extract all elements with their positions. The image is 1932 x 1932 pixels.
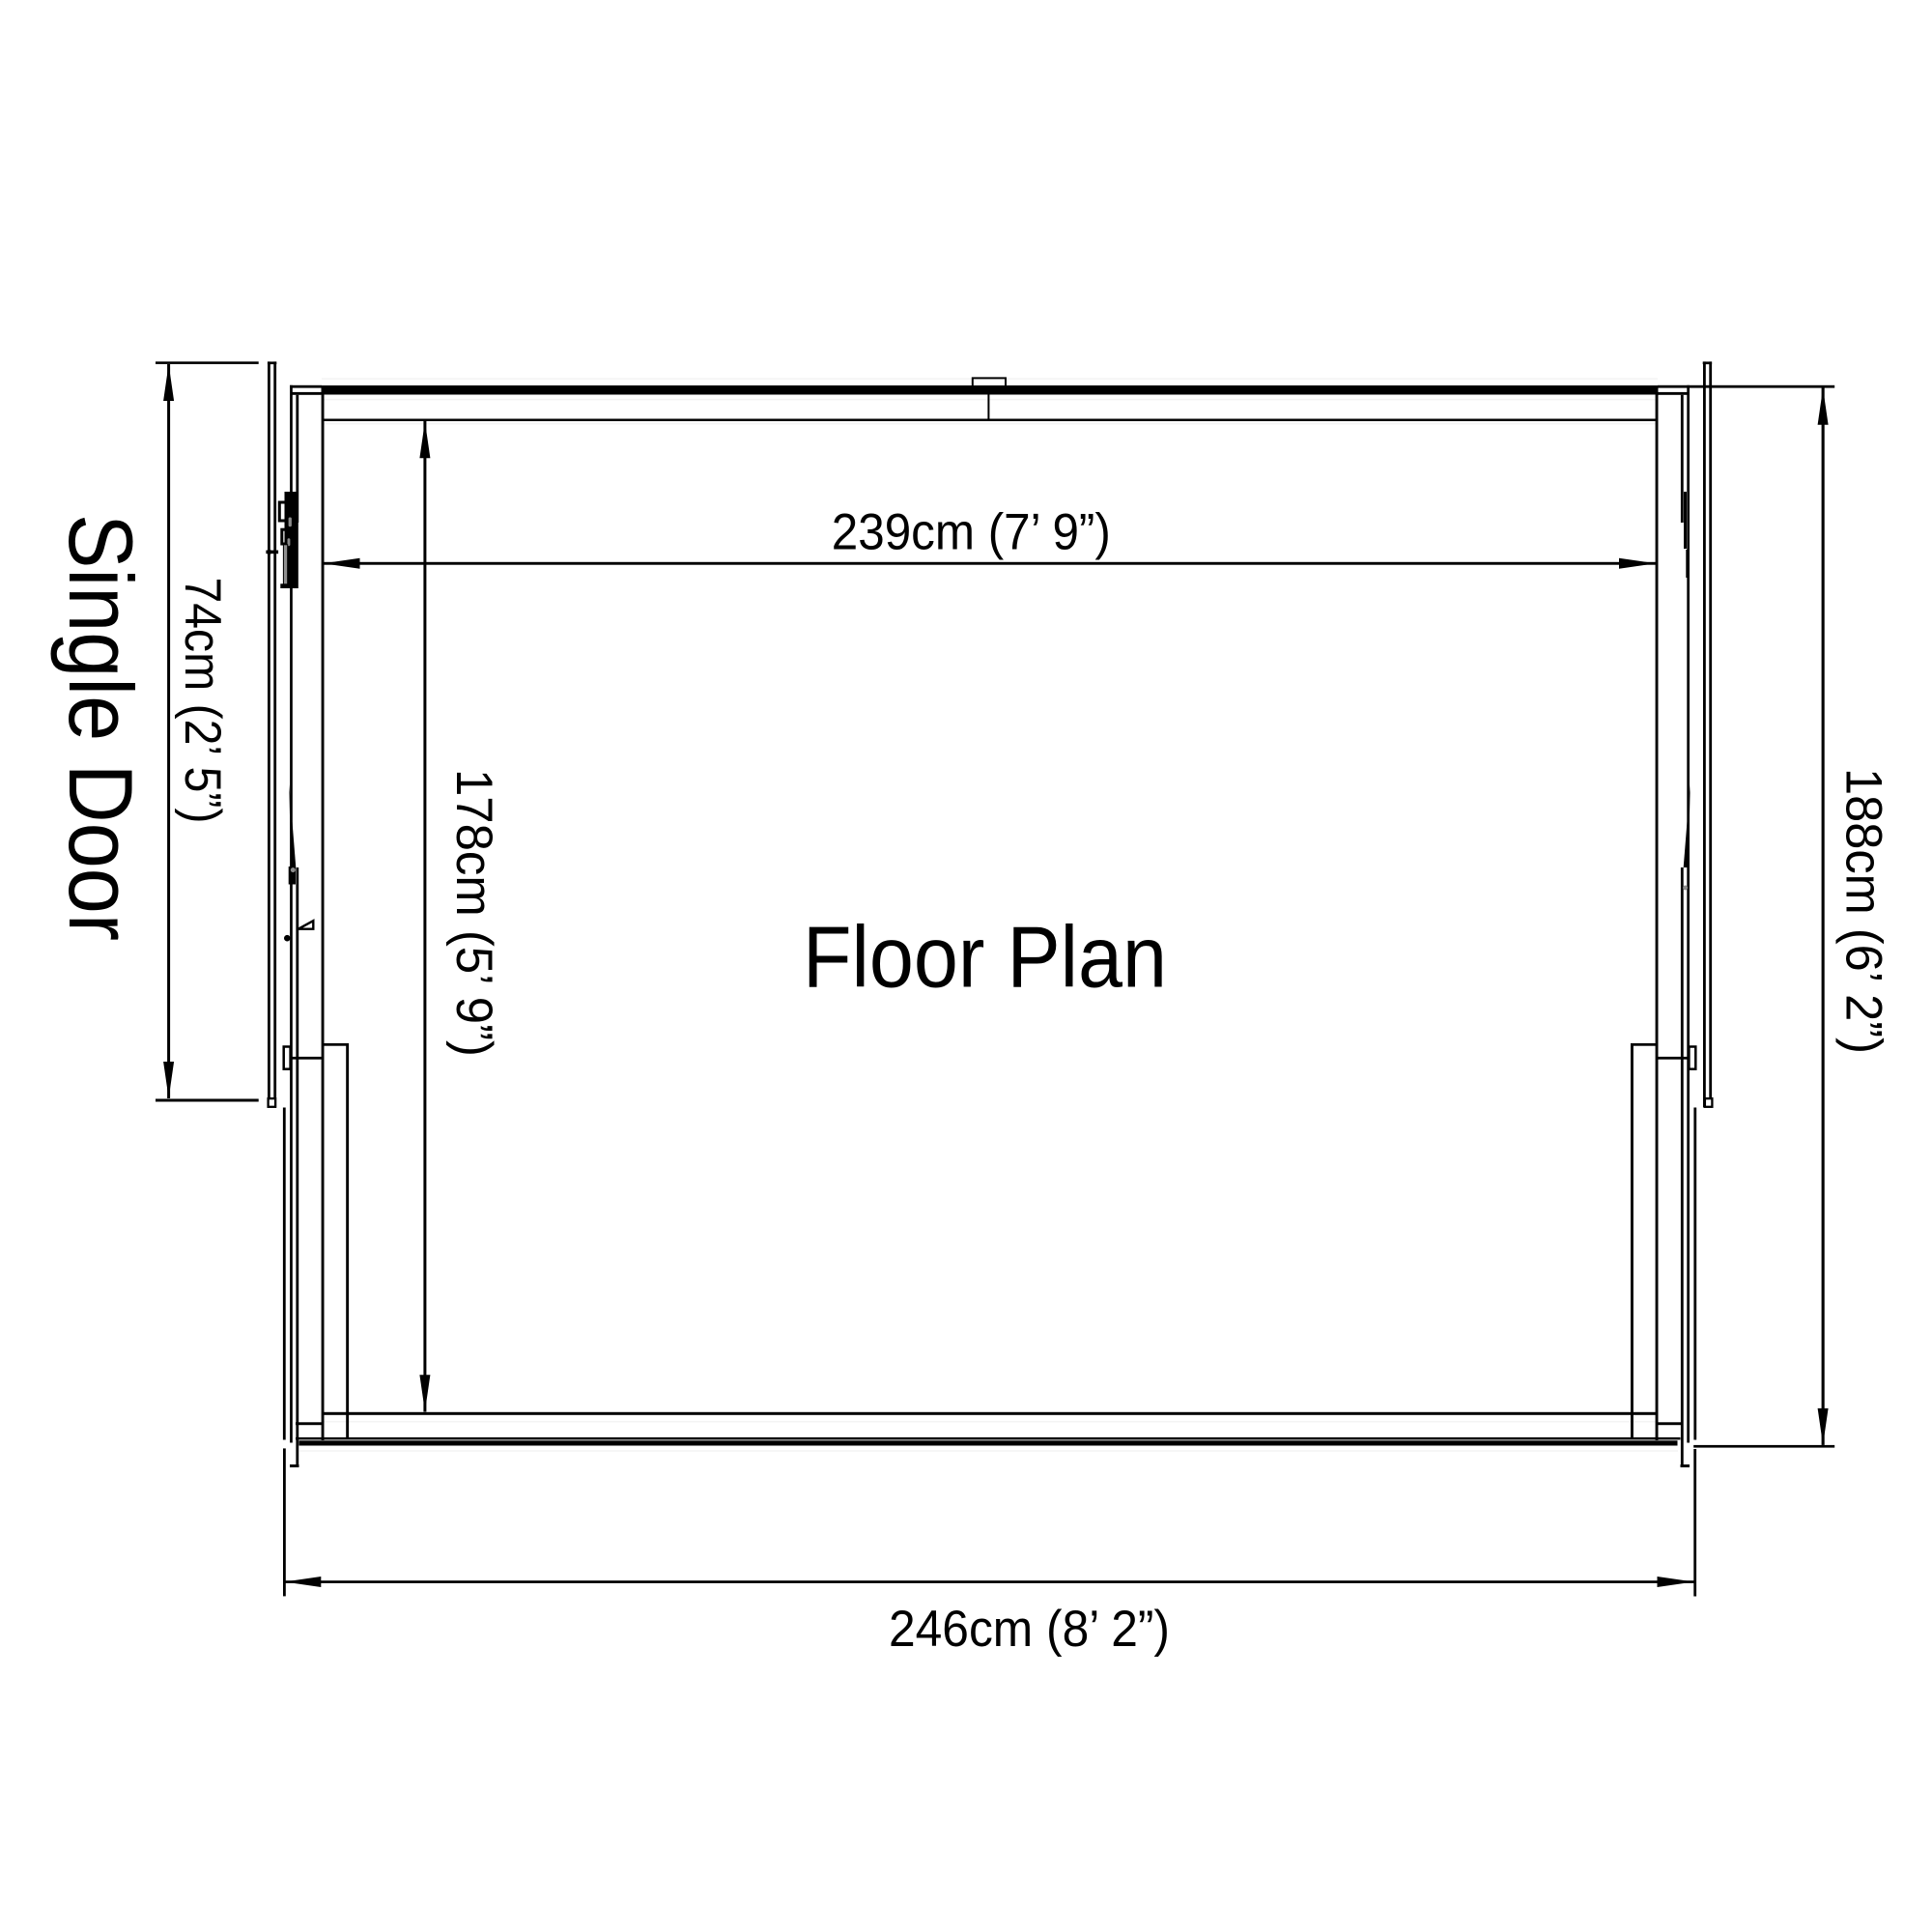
svg-text:Floor Plan: Floor Plan — [803, 909, 1167, 1006]
svg-text:239cm (7’ 9”): 239cm (7’ 9”) — [832, 504, 1111, 561]
svg-text:246cm (8’ 2”): 246cm (8’ 2”) — [889, 1601, 1170, 1658]
svg-text:178cm (5’ 9”): 178cm (5’ 9”) — [445, 769, 502, 1057]
svg-text:74cm (2’ 5”): 74cm (2’ 5”) — [174, 578, 231, 824]
svg-text:Single Door: Single Door — [50, 514, 152, 941]
svg-text:188cm (6’ 2”): 188cm (6’ 2”) — [1835, 768, 1892, 1054]
